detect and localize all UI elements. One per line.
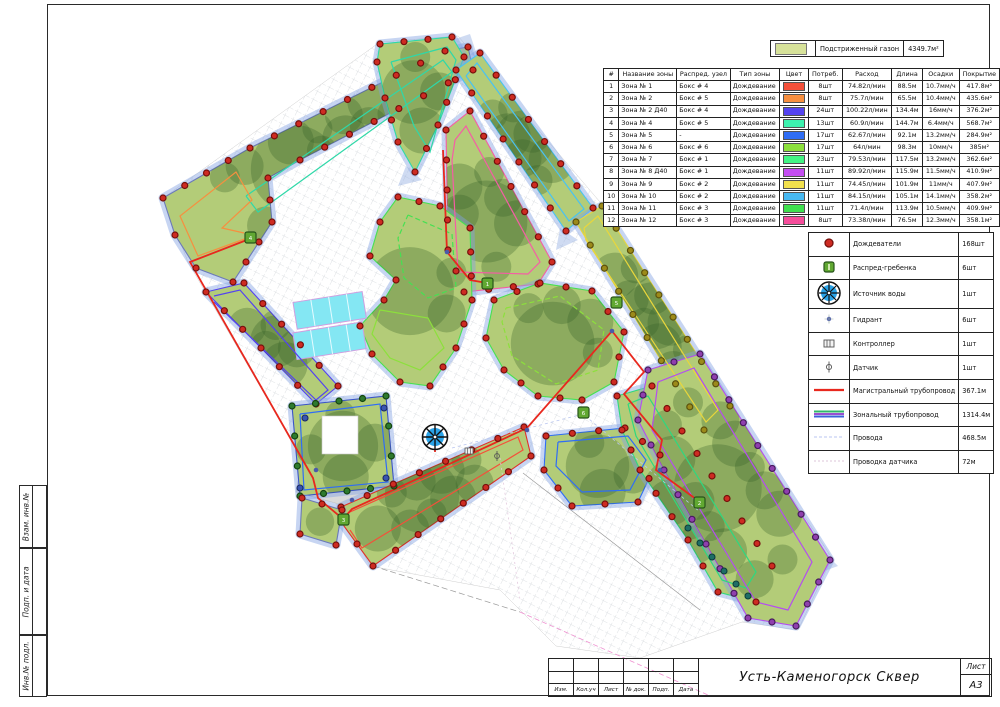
zone-row: 6Зона № 6Бокс # 6Дождевание17шт64л/мин98… <box>604 142 1000 154</box>
zone-cell: 8шт <box>808 215 842 227</box>
zone-color-cell <box>780 178 809 190</box>
lawn-swatch <box>775 43 807 55</box>
zone-cell: Дождевание <box>730 93 779 105</box>
zone-row: 3Зона № 2 Д40Бокс # 4Дождевание24шт100.2… <box>604 105 1000 117</box>
zone-cell: 10.4мм/ч <box>922 93 959 105</box>
zones-header: Потреб. <box>808 69 842 81</box>
zone-cell: 62.67л/мин <box>842 129 892 141</box>
zone-cell: 13.2мм/ч <box>922 129 959 141</box>
revision-column-label: Лист <box>599 684 624 696</box>
title-block: Изм.Кол.учЛист№ док.Подп.Дата Усть-Камен… <box>548 658 992 697</box>
zone-cell: Бокс # 3 <box>677 215 731 227</box>
zone-cell: 1 <box>604 81 619 93</box>
zone-cell: 117.5м <box>892 154 923 166</box>
zone-cell: 358.2м² <box>959 190 999 202</box>
zone-cell: Бокс # 2 <box>677 178 731 190</box>
legend-row: Зональный трубопровод1314.4м <box>809 403 994 427</box>
legend-row: Магистральный трубопровод367.1м <box>809 379 994 403</box>
zone-row: 1Зона № 1Бокс # 4Дождевание8шт74.82л/мин… <box>604 81 1000 93</box>
zone-row: 4Зона № 4Бокс # 5Дождевание13шт60.9л/мин… <box>604 117 1000 129</box>
zone-cell: 74.45л/мин <box>842 178 892 190</box>
revision-column-label: № док. <box>624 684 649 696</box>
zone-cell: 11шт <box>808 166 842 178</box>
revision-cell <box>649 659 674 671</box>
zone-cell: 11шт <box>808 190 842 202</box>
zone-pipe-icon <box>809 403 850 427</box>
revision-cell <box>624 672 649 684</box>
zone-cell: 13.2мм/ч <box>922 154 959 166</box>
zone-cell: 5 <box>604 129 619 141</box>
legend-label: Зональный трубопровод <box>850 403 959 427</box>
drawing-sheet: 4 1 3 6 2 5 Взам. инв.№ Подп. и дата <box>0 0 1000 707</box>
zone-color-swatch <box>783 155 805 164</box>
legend-value: 1шт <box>959 356 994 380</box>
legend-label: Провода <box>850 427 959 451</box>
zones-header: Осадки <box>922 69 959 81</box>
zone-cell: 8шт <box>808 93 842 105</box>
zone-cell: Дождевание <box>730 154 779 166</box>
zone-cell: 101.9м <box>892 178 923 190</box>
zone-color-cell <box>780 154 809 166</box>
lawn-legend-label: Подстриженный газон <box>816 41 904 57</box>
controller-icon <box>809 332 850 356</box>
zone-cell: 435.6м² <box>959 93 999 105</box>
zone-cell: 11шт <box>808 178 842 190</box>
zone-cell: 12.3мм/ч <box>922 215 959 227</box>
legend-value: 1шт <box>959 332 994 356</box>
zone-cell: 73.38л/мин <box>842 215 892 227</box>
zone-cell: 11шт <box>808 203 842 215</box>
zone-cell: Дождевание <box>730 117 779 129</box>
zone-cell: 71.4л/мин <box>842 203 892 215</box>
legend-row: Источник воды1шт <box>809 280 994 309</box>
zone-color-swatch <box>783 204 805 213</box>
zones-header: # <box>604 69 619 81</box>
zone-row: 2Зона № 2Бокс # 5Дождевание8шт75.7л/мин6… <box>604 93 1000 105</box>
zone-cell: 88.5м <box>892 81 923 93</box>
legend-row: Проводка датчика72м <box>809 450 994 474</box>
zone-cell: 14.1мм/ч <box>922 190 959 202</box>
zone-color-cell <box>780 203 809 215</box>
zone-row: 5Зона № 5-Дождевание17шт62.67л/мин92.1м1… <box>604 129 1000 141</box>
zone-cell: 385м² <box>959 142 999 154</box>
legend-row: Контроллер1шт <box>809 332 994 356</box>
lawn-legend-value: 4349.7м² <box>904 41 944 57</box>
zones-header: Распред. узел <box>677 69 731 81</box>
legend-value: 168шт <box>959 233 994 257</box>
legend-row: Провода468.5м <box>809 427 994 451</box>
zone-cell: 115.9м <box>892 166 923 178</box>
zone-color-swatch <box>783 216 805 225</box>
zone-cell: Дождевание <box>730 190 779 202</box>
zone-cell: 417.8м² <box>959 81 999 93</box>
legend-value: 1314.4м <box>959 403 994 427</box>
zone-color-swatch <box>783 82 805 91</box>
zone-cell: 376.2м² <box>959 105 999 117</box>
zone-cell: 11мм/ч <box>922 178 959 190</box>
zone-cell: Дождевание <box>730 142 779 154</box>
zone-cell: Зона № 8 Д40 <box>619 166 677 178</box>
zone-cell: Зона № 2 <box>619 93 677 105</box>
wires-icon <box>809 427 850 451</box>
zones-table: #Название зоныРаспред. узелТип зоныЦветП… <box>603 68 1000 227</box>
revision-cell <box>549 659 574 671</box>
legend-value: 6шт <box>959 256 994 280</box>
revision-columns: Изм.Кол.учЛист№ док.Подп.Дата <box>549 659 699 696</box>
legend-label: Распред-гребенка <box>850 256 959 280</box>
zone-row: 10Зона № 10Бокс # 2Дождевание11шт84.15л/… <box>604 190 1000 202</box>
legend-label: Источник воды <box>850 280 959 309</box>
revision-cell <box>599 659 624 671</box>
zones-header: Расход <box>842 69 892 81</box>
zone-row: 9Зона № 9Бокс # 2Дождевание11шт74.45л/ми… <box>604 178 1000 190</box>
lawn-swatch-cell <box>771 41 816 57</box>
revision-cell <box>624 659 649 671</box>
zone-cell: 4 <box>604 117 619 129</box>
zone-cell: 407.9м² <box>959 178 999 190</box>
zone-cell: 79.53л/мин <box>842 154 892 166</box>
zones-header: Покрытие <box>959 69 999 81</box>
zone-cell: 12 <box>604 215 619 227</box>
zone-color-cell <box>780 93 809 105</box>
zone-cell: Бокс # 5 <box>677 117 731 129</box>
zone-cell: Дождевание <box>730 129 779 141</box>
lawn-legend: Подстриженный газон 4349.7м² <box>770 40 944 57</box>
zone-cell: 10.7мм/ч <box>922 81 959 93</box>
zone-cell: 105.1м <box>892 190 923 202</box>
sensor-wire-icon <box>809 450 850 474</box>
zone-cell: Дождевание <box>730 81 779 93</box>
zone-color-swatch <box>783 94 805 103</box>
zones-header: Длина <box>892 69 923 81</box>
zone-cell: 8шт <box>808 81 842 93</box>
zone-color-cell <box>780 215 809 227</box>
zone-row: 8Зона № 8 Д40Бокс # 1Дождевание11шт89.92… <box>604 166 1000 178</box>
zone-color-cell <box>780 166 809 178</box>
revision-column-label: Изм. <box>549 684 574 696</box>
zone-cell: Зона № 5 <box>619 129 677 141</box>
zone-cell: 568.7м² <box>959 117 999 129</box>
zone-cell: 410.9м² <box>959 166 999 178</box>
side-label: Подп. и дата <box>22 566 31 617</box>
legend-value: 468.5м <box>959 427 994 451</box>
zone-cell: Зона № 1 <box>619 81 677 93</box>
zone-row: 7Зона № 7Бокс # 1Дождевание23шт79.53л/ми… <box>604 154 1000 166</box>
zone-cell: Бокс # 5 <box>677 93 731 105</box>
zone-cell: 10мм/ч <box>922 142 959 154</box>
legend-row: Гидрант6шт <box>809 309 994 333</box>
zone-cell: 284.9м² <box>959 129 999 141</box>
zone-cell: 6 <box>604 142 619 154</box>
legend-label: Гидрант <box>850 309 959 333</box>
zone-color-swatch <box>783 180 805 189</box>
zone-cell: Зона № 4 <box>619 117 677 129</box>
revision-column-label: Подп. <box>649 684 674 696</box>
zone-cell: Бокс # 6 <box>677 142 731 154</box>
zone-cell: 13шт <box>808 117 842 129</box>
zone-cell: Бокс # 4 <box>677 81 731 93</box>
revision-cell <box>549 672 574 684</box>
revision-cell <box>649 672 674 684</box>
water-source-icon <box>809 280 850 309</box>
zone-cell: 10 <box>604 190 619 202</box>
zone-cell: Зона № 11 <box>619 203 677 215</box>
side-stamp-1: Взам. инв.№ <box>19 485 47 548</box>
zone-cell: Зона № 6 <box>619 142 677 154</box>
zone-cell: 362.6м² <box>959 154 999 166</box>
zone-cell: 74.82л/мин <box>842 81 892 93</box>
zone-cell: 17шт <box>808 142 842 154</box>
zone-cell: 17шт <box>808 129 842 141</box>
zone-cell: 11 <box>604 203 619 215</box>
zone-cell: Зона № 10 <box>619 190 677 202</box>
zone-cell: 409.9м² <box>959 203 999 215</box>
zone-cell: Дождевание <box>730 178 779 190</box>
zone-cell: - <box>677 129 731 141</box>
zone-cell: Дождевание <box>730 215 779 227</box>
zone-cell: 76.5м <box>892 215 923 227</box>
zone-cell: 100.22л/мин <box>842 105 892 117</box>
zone-cell: Зона № 12 <box>619 215 677 227</box>
revision-column-label: Дата <box>674 684 698 696</box>
zone-cell: 134.4м <box>892 105 923 117</box>
zone-cell: 6.4мм/ч <box>922 117 959 129</box>
zone-color-cell <box>780 105 809 117</box>
sheet-label: Лист <box>961 659 991 675</box>
zones-header: Цвет <box>780 69 809 81</box>
revision-column-label: Кол.уч <box>574 684 599 696</box>
zone-cell: 24шт <box>808 105 842 117</box>
zone-cell: 98.3м <box>892 142 923 154</box>
zone-cell: 65.5м <box>892 93 923 105</box>
drawing-title: Усть-Каменогорск Сквер <box>699 659 960 696</box>
zone-color-swatch <box>783 119 805 128</box>
zone-color-cell <box>780 117 809 129</box>
equipment-legend: Дождеватели168штРаспред-гребенка6штИсточ… <box>808 232 994 474</box>
zone-color-cell <box>780 142 809 154</box>
zone-cell: 16мм/ч <box>922 105 959 117</box>
zone-row: 11Зона № 11Бокс # 3Дождевание11шт71.4л/м… <box>604 203 1000 215</box>
zone-cell: Зона № 9 <box>619 178 677 190</box>
revision-cell <box>599 672 624 684</box>
revision-cell <box>674 672 698 684</box>
legend-row: Дождеватели168шт <box>809 233 994 257</box>
sprinkler-icon <box>809 233 850 257</box>
zone-cell: 89.92л/мин <box>842 166 892 178</box>
zone-cell: Дождевание <box>730 166 779 178</box>
zone-cell: 2 <box>604 93 619 105</box>
legend-label: Проводка датчика <box>850 450 959 474</box>
sensor-icon <box>809 356 850 380</box>
hydrant-icon <box>809 309 850 333</box>
zone-cell: 358.1м² <box>959 215 999 227</box>
zone-cell: Бокс # 3 <box>677 203 731 215</box>
legend-row: Распред-гребенка6шт <box>809 256 994 280</box>
main-pipe-icon <box>809 379 850 403</box>
zone-cell: 113.9м <box>892 203 923 215</box>
zone-cell: 8 <box>604 166 619 178</box>
legend-label: Дождеватели <box>850 233 959 257</box>
zone-cell: Бокс # 4 <box>677 105 731 117</box>
zone-cell: 75.7л/мин <box>842 93 892 105</box>
legend-value: 6шт <box>959 309 994 333</box>
sheet-box: Лист А3 <box>960 659 991 696</box>
revision-cell <box>674 659 698 671</box>
zone-color-swatch <box>783 107 805 116</box>
legend-row: Датчик1шт <box>809 356 994 380</box>
zone-cell: Зона № 7 <box>619 154 677 166</box>
legend-label: Контроллер <box>850 332 959 356</box>
zone-cell: Дождевание <box>730 105 779 117</box>
zone-color-swatch <box>783 143 805 152</box>
zone-cell: 10.5мм/ч <box>922 203 959 215</box>
zone-color-swatch <box>783 131 805 140</box>
legend-label: Датчик <box>850 356 959 380</box>
legend-label: Магистральный трубопровод <box>850 379 959 403</box>
legend-value: 367.1м <box>959 379 994 403</box>
zone-cell: 60.9л/мин <box>842 117 892 129</box>
legend-value: 72м <box>959 450 994 474</box>
zone-cell: Бокс # 1 <box>677 154 731 166</box>
zone-cell: 92.1м <box>892 129 923 141</box>
zone-cell: 64л/мин <box>842 142 892 154</box>
zones-header: Тип зоны <box>730 69 779 81</box>
zone-cell: 84.15л/мин <box>842 190 892 202</box>
zones-header: Название зоны <box>619 69 677 81</box>
zone-cell: 11.5мм/ч <box>922 166 959 178</box>
zone-color-swatch <box>783 168 805 177</box>
zone-cell: 7 <box>604 154 619 166</box>
zone-color-cell <box>780 81 809 93</box>
side-label: Взам. инв.№ <box>22 492 31 541</box>
revision-cell <box>574 659 599 671</box>
zone-cell: 3 <box>604 105 619 117</box>
zone-cell: Бокс # 1 <box>677 166 731 178</box>
zone-cell: Бокс # 2 <box>677 190 731 202</box>
zone-row: 12Зона № 12Бокс # 3Дождевание8шт73.38л/м… <box>604 215 1000 227</box>
zone-cell: 23шт <box>808 154 842 166</box>
sheet-format: А3 <box>961 675 991 696</box>
legend-value: 1шт <box>959 280 994 309</box>
zone-color-swatch <box>783 192 805 201</box>
side-label: Инв.№ подл. <box>22 641 31 690</box>
zone-cell: 9 <box>604 178 619 190</box>
zone-cell: 144.7м <box>892 117 923 129</box>
side-stamp-3: Инв.№ подл. <box>19 635 47 697</box>
manifold-icon <box>809 256 850 280</box>
zone-color-cell <box>780 129 809 141</box>
revision-cell <box>574 672 599 684</box>
side-stamp-2: Подп. и дата <box>19 548 47 635</box>
zone-color-cell <box>780 190 809 202</box>
zone-cell: Дождевание <box>730 203 779 215</box>
zone-cell: Зона № 2 Д40 <box>619 105 677 117</box>
